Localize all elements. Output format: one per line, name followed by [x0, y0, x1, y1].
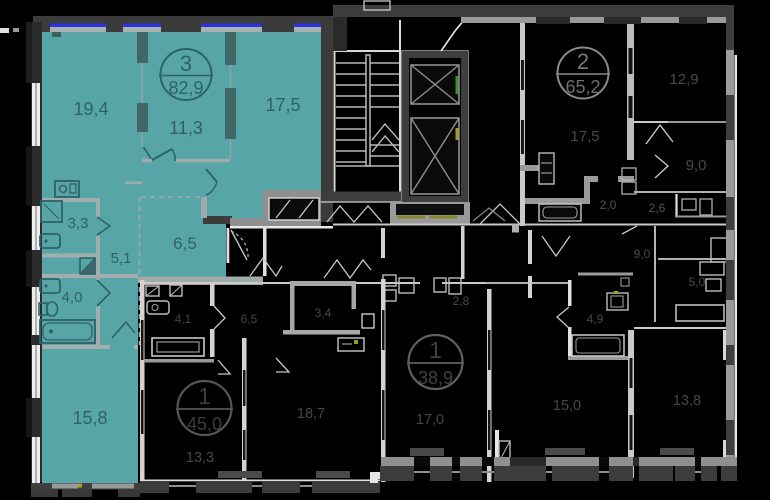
svg-text:12,9: 12,9	[669, 71, 698, 88]
svg-text:4,1: 4,1	[175, 312, 192, 326]
svg-text:6,5: 6,5	[173, 234, 197, 253]
svg-text:19,4: 19,4	[73, 99, 108, 119]
svg-text:38,9: 38,9	[418, 368, 453, 388]
svg-text:3,4: 3,4	[315, 306, 332, 320]
svg-text:6,5: 6,5	[241, 312, 258, 326]
svg-text:65,2: 65,2	[565, 77, 600, 97]
svg-text:13,8: 13,8	[673, 393, 701, 409]
svg-text:2,0: 2,0	[600, 198, 617, 212]
svg-text:82,9: 82,9	[168, 78, 203, 98]
svg-text:5,0: 5,0	[689, 275, 706, 289]
svg-text:9,0: 9,0	[634, 247, 651, 261]
svg-text:9,0: 9,0	[686, 157, 707, 174]
svg-text:17,5: 17,5	[265, 95, 300, 115]
svg-text:15,8: 15,8	[72, 408, 107, 428]
svg-text:1: 1	[429, 337, 442, 363]
svg-text:3,3: 3,3	[68, 215, 89, 232]
svg-text:17,5: 17,5	[570, 128, 599, 145]
svg-text:17,0: 17,0	[416, 412, 444, 428]
svg-text:1: 1	[198, 383, 211, 409]
svg-text:4,0: 4,0	[62, 289, 83, 306]
svg-text:2: 2	[577, 49, 589, 74]
svg-text:11,3: 11,3	[169, 118, 203, 138]
svg-text:18,7: 18,7	[297, 406, 325, 422]
svg-text:3: 3	[180, 51, 192, 76]
svg-text:13,3: 13,3	[186, 450, 214, 466]
svg-text:2,8: 2,8	[453, 294, 470, 308]
svg-text:45,0: 45,0	[187, 414, 222, 434]
svg-text:5,1: 5,1	[111, 250, 132, 267]
svg-text:2,6: 2,6	[649, 201, 666, 215]
svg-text:15,0: 15,0	[553, 398, 581, 414]
svg-text:4,9: 4,9	[587, 312, 604, 326]
